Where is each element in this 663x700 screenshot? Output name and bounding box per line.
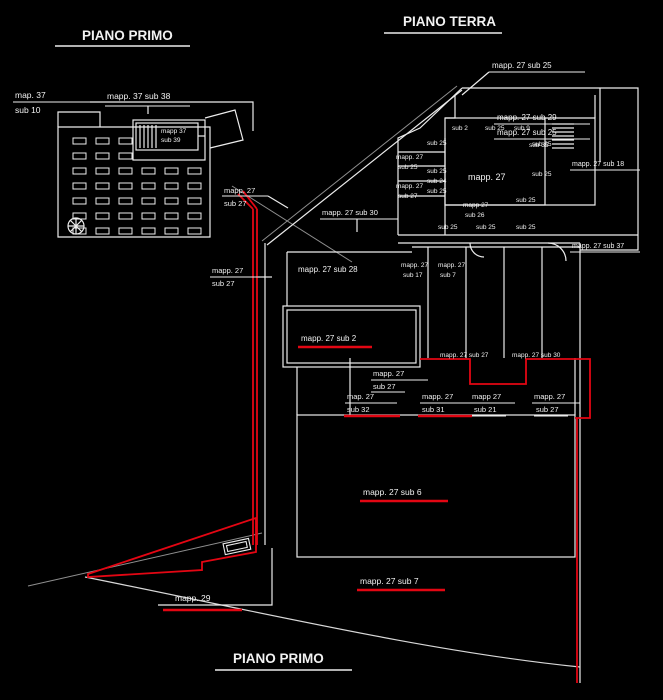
label-sub-21: sub 21 xyxy=(474,405,497,414)
label-sub-27-left: sub 27 xyxy=(398,193,418,200)
desk-rect xyxy=(188,198,201,204)
label-sub-25-col-2: sub 25 xyxy=(427,168,447,175)
label-mapp-27-mid: mapp 27 xyxy=(463,202,489,209)
label-sub-25-right-2: sub 25 xyxy=(532,171,552,178)
label-sub-17-mid-1: sub 17 xyxy=(403,272,423,279)
label-map-37: map. 37 xyxy=(15,90,46,100)
desk-rect xyxy=(188,168,201,174)
desk-rect xyxy=(165,213,178,219)
floor-plan-drawing: PIANO PRIMOPIANO TERRAPIANO PRIMOmap. 37… xyxy=(0,0,663,700)
desk-rect xyxy=(142,213,155,219)
label-sub-24: sub 24 xyxy=(427,178,447,185)
label-sub-31: sub 31 xyxy=(422,405,445,414)
desk-rect xyxy=(96,138,109,144)
title-piano-terra: PIANO TERRA xyxy=(403,14,496,29)
label-mapp-27-low-left: mapp. 27 xyxy=(212,266,243,275)
desk-rect xyxy=(165,168,178,174)
desk-rect xyxy=(119,213,132,219)
label-mapp-27-diag: mapp. 27 xyxy=(224,186,255,195)
label-sub-25-col-1: sub 25 xyxy=(427,140,447,147)
grey-lines-layer xyxy=(28,86,457,586)
label-mapp-37-box: mapp 37 xyxy=(161,128,187,135)
desk-rect xyxy=(73,183,86,189)
label-sub-25-row-1: sub 25 xyxy=(438,224,458,231)
label-sub-27-diag: sub 27 xyxy=(224,199,247,208)
desk-rect xyxy=(73,198,86,204)
label-mapp-27-sub-7: mapp. 27 sub 7 xyxy=(360,576,419,586)
desk-rect xyxy=(96,153,109,159)
label-sub-7-mid-2: sub 7 xyxy=(440,272,456,279)
label-sub-26: sub 26 xyxy=(465,212,485,219)
label-sub-25-row-2: sub 25 xyxy=(476,224,496,231)
label-mapp-27-sub-37: mapp. 27 sub 37 xyxy=(572,243,624,250)
desk-rect xyxy=(96,228,109,234)
desk-rect xyxy=(142,183,155,189)
label-mapp-27-sub-6: mapp. 27 sub 6 xyxy=(363,487,422,497)
desk-rect xyxy=(188,228,201,234)
right-plan-walls xyxy=(85,72,638,683)
label-mapp-27-room: mapp. 27 xyxy=(468,172,506,182)
label-mapp-27-sub-30-b: mapp. 27 sub 30 xyxy=(512,352,561,359)
label-sub-25-right-1: sub 25 xyxy=(532,141,552,148)
label-mapp-27-mid-2: mapp. 27 xyxy=(438,262,465,269)
desk-rect xyxy=(188,213,201,219)
desk-rect xyxy=(119,198,132,204)
label-map-27-b: map. 27 xyxy=(347,392,374,401)
desk-rect xyxy=(73,153,86,159)
label-sub-9: sub 9 xyxy=(514,125,530,132)
desk-rect xyxy=(119,168,132,174)
desk-rect xyxy=(142,198,155,204)
label-mapp-27-sub-30-a: mapp. 27 sub 30 xyxy=(322,208,378,217)
label-mapp-37-sub-38: mapp. 37 sub 38 xyxy=(107,91,171,101)
desk-rect xyxy=(96,183,109,189)
labels-layer: PIANO PRIMOPIANO TERRAPIANO PRIMOmap. 37… xyxy=(13,14,640,670)
desk-rect xyxy=(119,228,132,234)
label-mapp-27-d: mapp 27 xyxy=(472,392,501,401)
label-mapp-27-c: mapp. 27 xyxy=(422,392,453,401)
label-mapp-27-e: mapp. 27 xyxy=(534,392,565,401)
desk-rect xyxy=(96,213,109,219)
desk-rect xyxy=(96,198,109,204)
label-sub-27-e: sub 27 xyxy=(536,405,559,414)
desk-rect xyxy=(165,198,178,204)
title-piano-primo-top: PIANO PRIMO xyxy=(82,28,173,43)
desk-rect xyxy=(188,183,201,189)
desk-rect xyxy=(73,138,86,144)
label-mapp-29: mapp. 29 xyxy=(175,593,211,603)
desk-rect xyxy=(119,183,132,189)
label-mapp-27-a: mapp. 27 xyxy=(373,369,404,378)
label-mapp-27-sub-2: mapp. 27 sub 2 xyxy=(301,334,357,343)
label-sub-39-box: sub 39 xyxy=(161,137,181,144)
label-mapp-27-sub-27-row: mapp. 27 sub 27 xyxy=(440,352,489,359)
desk-rect xyxy=(119,138,132,144)
label-mapp-27-sub-25-a: mapp. 27 sub 25 xyxy=(492,61,552,70)
label-sub-10: sub 10 xyxy=(15,105,41,115)
label-mapp-27-sub-18: mapp. 27 sub 18 xyxy=(572,161,624,168)
label-sub-25-c: sub 25 xyxy=(485,125,505,132)
label-sub-25-col-3: sub 25 xyxy=(427,188,447,195)
desk-rect xyxy=(96,168,109,174)
label-sub-27-a: sub 27 xyxy=(373,382,396,391)
desk-rect xyxy=(142,228,155,234)
label-mapp-27-left-2: mapp. 27 xyxy=(396,183,423,190)
label-sub-32: sub 32 xyxy=(347,405,370,414)
label-mapp-27-left-1: mapp. 27 xyxy=(396,154,423,161)
desk-rect xyxy=(73,168,86,174)
desk-rect xyxy=(142,168,155,174)
floor-plan-page: PIANO PRIMOPIANO TERRAPIANO PRIMOmap. 37… xyxy=(0,0,663,700)
label-mapp-27-sub-29: mapp. 27 sub 29 xyxy=(497,113,557,122)
desk-rect xyxy=(165,183,178,189)
label-sub-2: sub 2 xyxy=(452,125,468,132)
label-sub-25-right-3: sub 25 xyxy=(516,197,536,204)
label-sub-25-left-1: sub 25 xyxy=(398,164,418,171)
desk-rect xyxy=(165,228,178,234)
desk-grid xyxy=(73,138,201,234)
label-sub-27-low-left: sub 27 xyxy=(212,279,235,288)
label-mapp-27-sub-28: mapp. 27 sub 28 xyxy=(298,265,358,274)
desk-rect xyxy=(119,153,132,159)
title-piano-primo-bottom: PIANO PRIMO xyxy=(233,651,324,666)
label-mapp-27-mid-1: mapp. 27 xyxy=(401,262,428,269)
label-sub-25-row-3: sub 25 xyxy=(516,224,536,231)
